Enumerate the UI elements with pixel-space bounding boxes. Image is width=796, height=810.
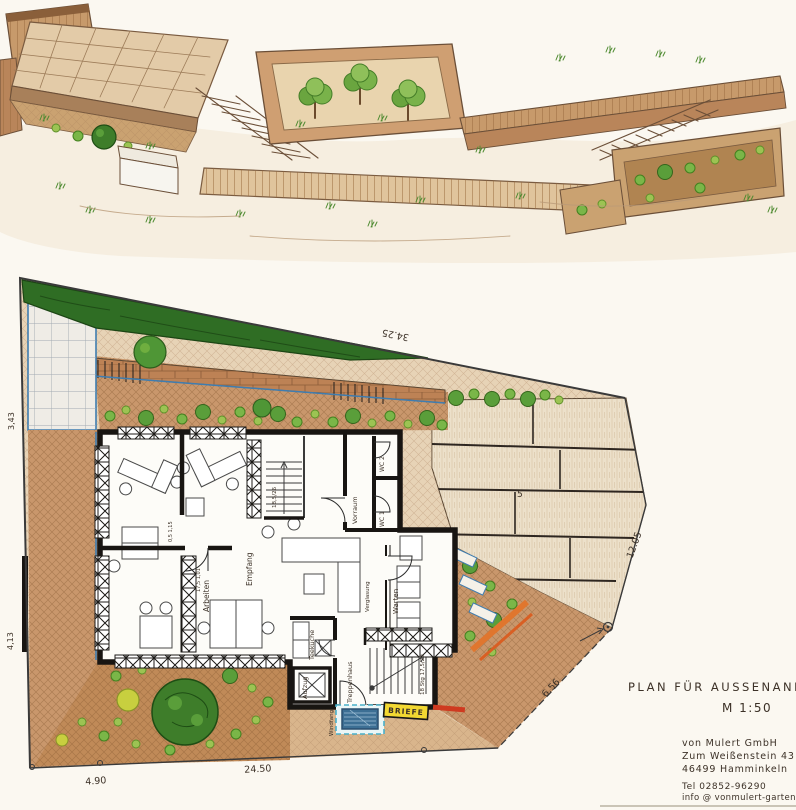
room-label-windfang: Windfang xyxy=(329,710,335,736)
room-label-vorraum: Vorraum xyxy=(351,496,359,524)
title-block: PLAN FÜR AUSSENANLAGE M 1:50 von Mulert … xyxy=(600,678,796,806)
plan-scale: M 1:50 xyxy=(722,701,772,715)
scanned-garden-plan-sheet: 5 xyxy=(0,0,796,810)
room-label-wc2: WC 2 xyxy=(379,456,386,472)
dark-shrub xyxy=(92,125,116,149)
company-city: 46499 Hamminkeln xyxy=(682,764,788,775)
stairs-note-upper: 18,5/26 xyxy=(272,486,278,508)
stairs-note-main: 18 Stg 17,5/29 xyxy=(420,654,426,695)
dim-bottom-left: 4.90 xyxy=(85,775,107,787)
dim-top: 34.25 xyxy=(381,326,410,342)
round-tree xyxy=(134,336,166,368)
entrance-mat xyxy=(342,709,378,729)
plan-drawing: 5 xyxy=(0,0,796,810)
dim-door-b: 17,5 1,01 xyxy=(196,568,202,592)
slab-mark-label: 5 xyxy=(517,490,523,500)
perspective-sketch xyxy=(0,4,796,263)
dim-left-lower: 4,13 xyxy=(6,632,15,650)
room-label-empfang: Empfang xyxy=(245,552,254,586)
mailbox: BRIEFE xyxy=(384,702,429,719)
yellow-bush xyxy=(117,689,139,711)
room-label-verglasung: Verglasung xyxy=(365,581,371,612)
dim-bottom: 24.50 xyxy=(244,763,272,775)
company-email: info @ vonmulert-gartenbau.de xyxy=(682,793,796,803)
company-street: Zum Weißenstein 43 xyxy=(682,751,795,762)
room-label-arbeiten: Arbeiten xyxy=(202,580,211,612)
room-label-warten: Warten xyxy=(392,589,400,614)
central-planter xyxy=(256,44,466,144)
plan-title: PLAN FÜR AUSSENANLAGE xyxy=(628,678,796,694)
company-phone: Tel 02852-96290 xyxy=(681,782,766,792)
dim-door-a: 0,5 1,15 xyxy=(168,521,174,542)
dim-left-upper: 3,43 xyxy=(7,412,16,430)
room-label-treppenhaus: Treppenhaus xyxy=(346,661,354,704)
site-plan: 5 xyxy=(6,278,646,788)
company-name: von Mulert GmbH xyxy=(682,738,778,749)
room-label-teekueche: Teeküche xyxy=(308,630,316,661)
room-label-wc1: WC 1 xyxy=(379,511,386,527)
room-label-aufzug: Aufzug xyxy=(301,676,309,699)
